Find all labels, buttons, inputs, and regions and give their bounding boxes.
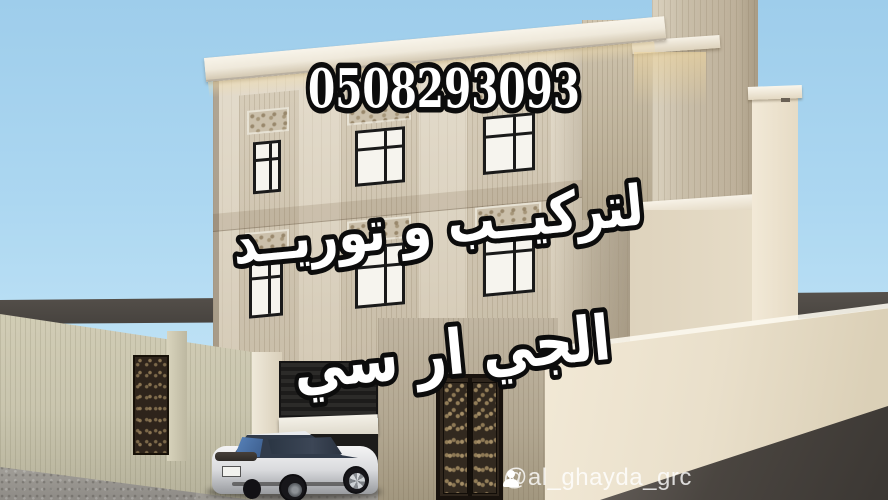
wheel-rim: [349, 473, 365, 489]
door-leaf: [443, 382, 468, 494]
right-wing-cap: [748, 85, 802, 100]
car-wheel: [243, 479, 261, 499]
grc-ornament-panel: [247, 107, 289, 135]
wheel-rim: [288, 483, 302, 497]
ornamental-gate: [133, 355, 169, 455]
window: [483, 228, 535, 297]
car-taillight: [215, 452, 257, 461]
window: [253, 140, 281, 195]
grc-ornament-panel: [347, 92, 411, 126]
door-stile: [468, 378, 472, 496]
ornamental-entrance-door: [436, 374, 503, 500]
window: [355, 242, 405, 309]
wall-vent: [781, 98, 790, 102]
window: [483, 112, 535, 175]
watermark-handle: @al_ghayda_grc: [503, 464, 692, 492]
gate-pillar: [167, 331, 187, 461]
car-license-plate: [222, 466, 241, 477]
window: [249, 256, 283, 319]
car-wheel: [279, 474, 307, 500]
window: [355, 126, 405, 187]
garage-shutter: [279, 361, 378, 418]
soffit-light-glow: [634, 52, 706, 106]
car-side-windows: [268, 437, 342, 454]
right-wing-wall: [752, 96, 798, 348]
stair-tower: [652, 0, 758, 216]
grc-ornament-panel: [245, 229, 289, 253]
car-wheel: [343, 466, 369, 494]
door-leaf: [472, 382, 497, 494]
promo-render-scene: 0508293093 لتركيــب و توريــد الجي ار سي…: [0, 0, 888, 500]
